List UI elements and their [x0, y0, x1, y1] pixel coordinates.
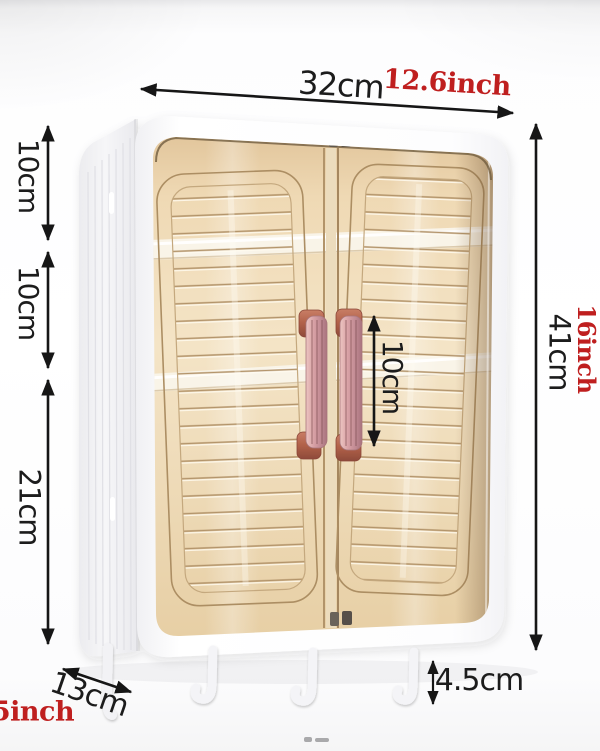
segment-middle-label: 10cm [14, 266, 42, 340]
hook-drop-label: 4.5cm [435, 666, 523, 696]
mount-tab [110, 497, 115, 521]
cabinet [79, 116, 508, 657]
handle-gap-label: 10cm [378, 340, 406, 414]
segment-bottom-label: 21cm [15, 468, 44, 545]
product-dimension-diagram: 32cm 12.6inch 41cm 16inch 10cm 10cm 21cm… [0, 0, 600, 751]
depth-inch-label: 5inch [0, 699, 74, 726]
cabinet-illustration [0, 0, 600, 751]
cabinet-side-panel [79, 119, 138, 657]
width-inch-label: 12.6inch [382, 66, 511, 101]
mount-tab [109, 192, 114, 214]
height-cm-label: 41cm [545, 313, 574, 390]
width-cm-label: 32cm [297, 66, 384, 103]
height-inch-label: 16inch [574, 304, 598, 393]
segment-top-label: 10cm [14, 139, 42, 213]
